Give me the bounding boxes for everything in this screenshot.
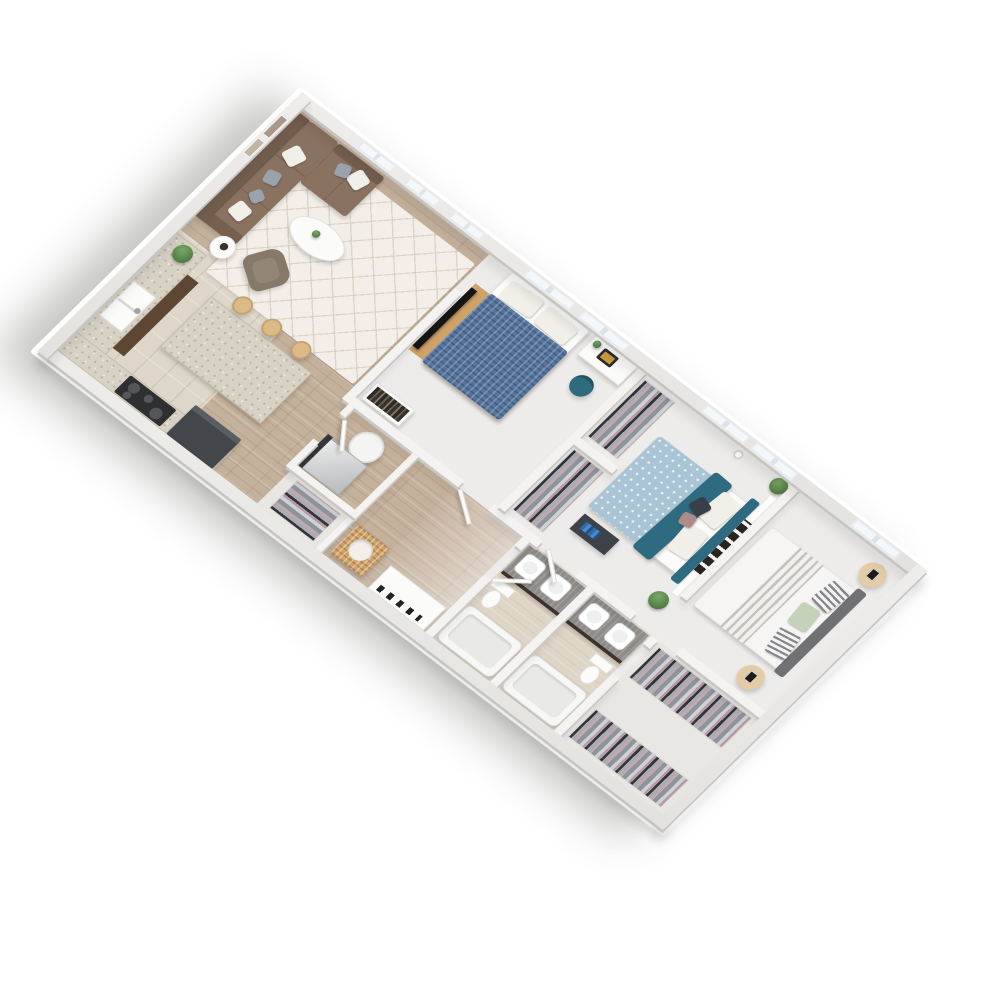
isometric-scene [38, 92, 928, 830]
floorplan-render-canvas [0, 0, 1000, 1000]
apartment-building [38, 92, 928, 830]
